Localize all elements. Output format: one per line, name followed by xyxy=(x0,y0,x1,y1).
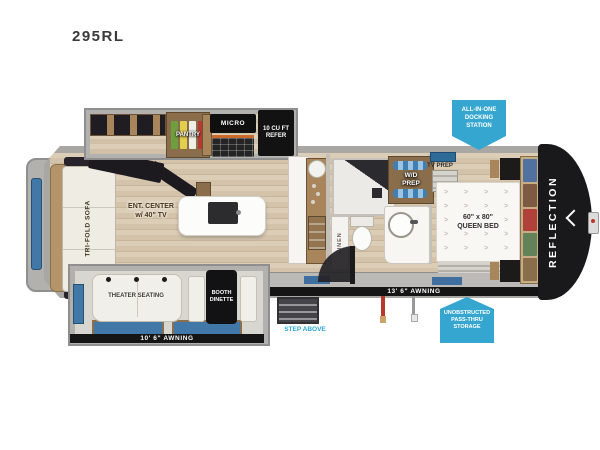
bedroom-tv xyxy=(430,152,456,162)
tv-prep-label: TV PREP xyxy=(418,163,462,169)
wardrobe-shelf xyxy=(523,184,537,207)
bedside-cabinet xyxy=(490,262,499,280)
slideout-window xyxy=(73,284,84,324)
bathroom-wall xyxy=(326,154,330,266)
kitchen-faucet xyxy=(236,210,241,215)
dinette-bench xyxy=(188,276,205,322)
step-above-label: STEP ABOVE xyxy=(273,326,337,333)
overhead-cabinets xyxy=(90,114,166,136)
refrigerator: 10 CU FT REFER xyxy=(258,110,294,156)
wardrobe-shelf xyxy=(523,233,537,256)
wardrobe-shelf xyxy=(523,258,537,281)
brand-text: REFLECTION xyxy=(542,150,564,294)
microwave: MICRO xyxy=(210,114,256,133)
cupholders xyxy=(106,277,111,282)
counter-dishes xyxy=(312,184,316,188)
entry-steps xyxy=(277,297,319,324)
queen-bed-label: 60" x 80" QUEEN BED xyxy=(437,183,519,261)
front-wardrobe xyxy=(520,156,540,284)
pass-thru-storage-badge: UNOBSTRUCTED PASS-THRU STORAGE xyxy=(440,297,494,343)
accessory-pole xyxy=(381,296,385,316)
booth-dinette-table: BOOTH DINETTE xyxy=(206,270,237,324)
accessory-pole-tip xyxy=(411,314,418,322)
awning-bar-slide: 10' 6" AWNING xyxy=(70,334,264,343)
cooktop-stove xyxy=(212,135,254,157)
shower-head xyxy=(372,188,382,198)
counter-drawers xyxy=(308,216,326,250)
vanity-faucet xyxy=(410,220,418,224)
counter-sink xyxy=(308,160,326,178)
queen-bed: 60" x 80" QUEEN BED xyxy=(436,182,520,262)
accessory-pole xyxy=(412,296,415,314)
theater-seating-label: THEATER SEATING xyxy=(90,293,182,299)
awning-bar-main: 13' 6" AWNING xyxy=(266,287,562,296)
nightstand xyxy=(500,260,520,282)
wardrobe-shelf xyxy=(523,159,537,182)
rear-window xyxy=(31,178,42,270)
toilet xyxy=(352,226,372,251)
kitchen-sink xyxy=(208,202,238,224)
dinette-bench xyxy=(240,276,257,322)
floorplan-title: 295RL xyxy=(72,28,125,45)
entry-door xyxy=(350,246,355,284)
entry-mat xyxy=(432,277,462,285)
bedside-cabinet xyxy=(490,160,499,178)
floorplan-canvas: 295RL TRI-FOLD SOFA ENT. CENTER w/ 40" T… xyxy=(0,0,600,450)
hitch-pin xyxy=(588,212,599,234)
docking-station-badge: ALL-IN-ONE DOCKING STATION xyxy=(452,100,506,150)
nightstand xyxy=(500,158,520,180)
wardrobe-shelf xyxy=(523,209,537,232)
vanity-sink xyxy=(388,212,414,238)
waste-basket xyxy=(196,182,211,197)
accessory-pole-tip xyxy=(380,316,386,323)
hitch-pin-marker xyxy=(591,219,595,223)
